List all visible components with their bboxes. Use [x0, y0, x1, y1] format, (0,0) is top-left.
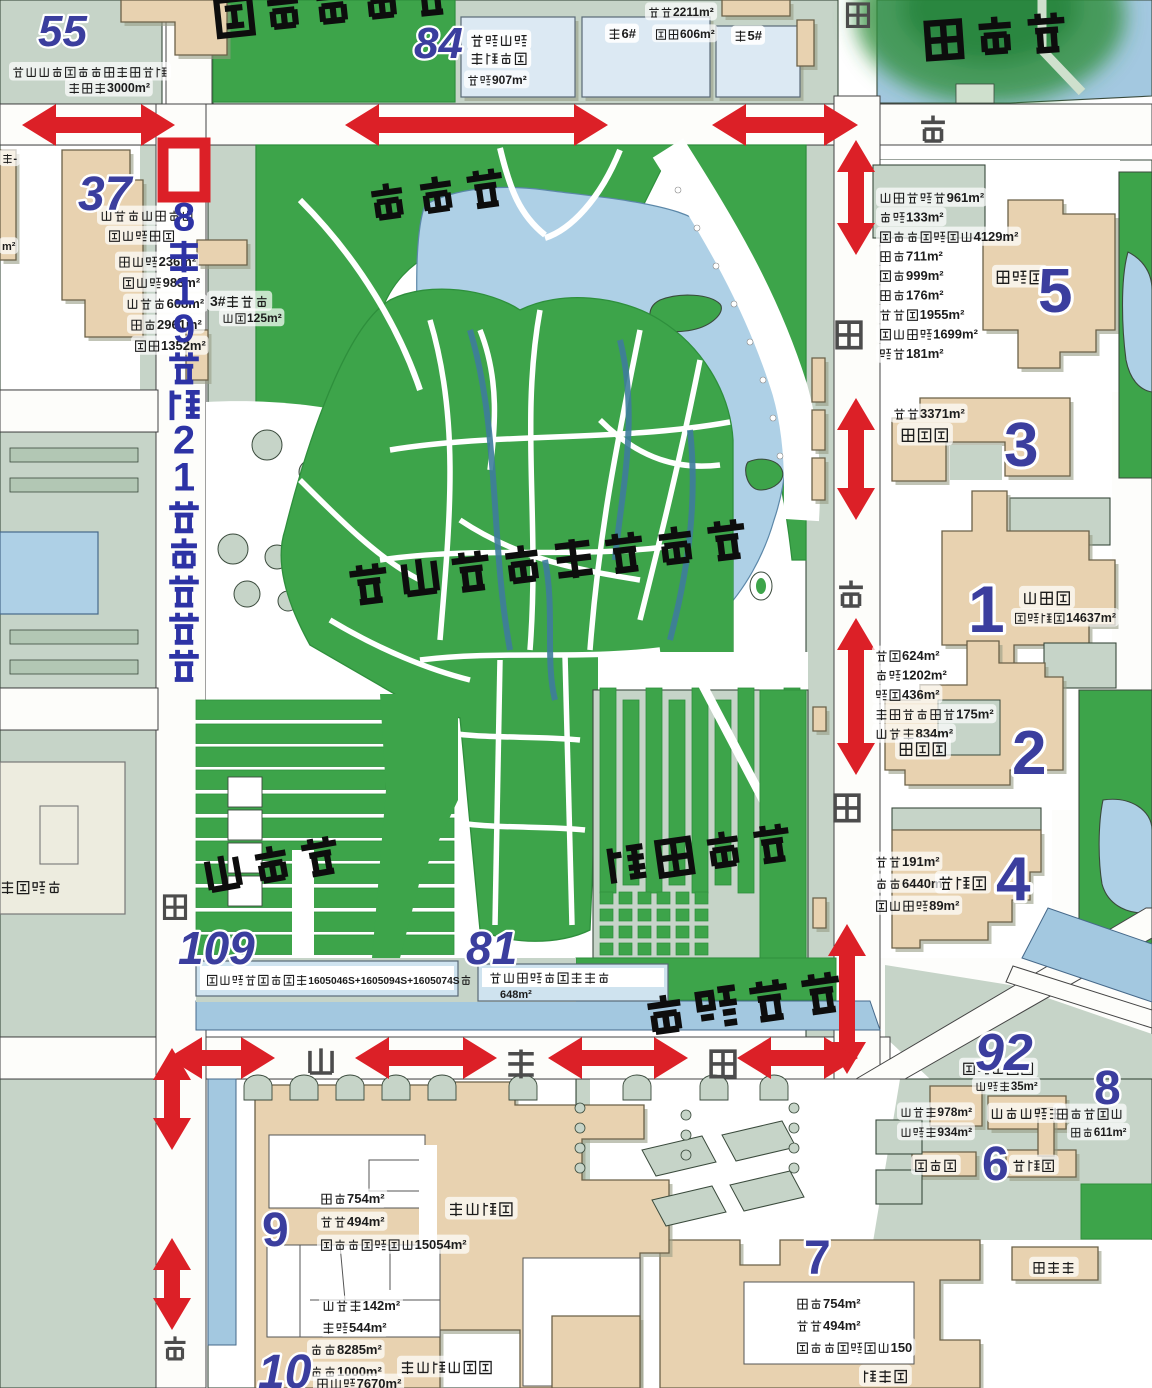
- svg-text:5: 5: [1038, 257, 1072, 326]
- svg-text:175m²: 175m²: [956, 707, 994, 722]
- svg-text:8285m²: 8285m²: [337, 1342, 382, 1357]
- svg-text:55: 55: [38, 7, 87, 56]
- svg-text:711m²: 711m²: [906, 249, 944, 264]
- svg-text:191m²: 191m²: [902, 854, 940, 869]
- svg-text:150: 150: [891, 1340, 913, 1355]
- svg-text:3371m²: 3371m²: [920, 406, 965, 421]
- svg-text:1: 1: [173, 456, 195, 500]
- svg-text:1699m²: 1699m²: [933, 327, 978, 342]
- svg-text:m²: m²: [2, 241, 16, 253]
- svg-text:978m²: 978m²: [937, 1105, 972, 1119]
- svg-text:142m²: 142m²: [363, 1298, 401, 1313]
- svg-text:4129m²: 4129m²: [974, 229, 1019, 244]
- svg-text:1605046S+1605094S+1605074S: 1605046S+1605094S+1605074S: [308, 976, 459, 987]
- svg-text:7: 7: [804, 1232, 831, 1285]
- svg-text:35m²: 35m²: [1011, 1081, 1038, 1093]
- svg-text:14637m²: 14637m²: [1066, 611, 1116, 625]
- svg-text:494m²: 494m²: [347, 1214, 385, 1229]
- svg-text:9: 9: [262, 1204, 289, 1257]
- svg-text:1202m²: 1202m²: [902, 668, 947, 683]
- svg-text:999m²: 999m²: [906, 268, 944, 283]
- svg-text:754m²: 754m²: [823, 1296, 861, 1311]
- svg-text:934m²: 934m²: [937, 1125, 972, 1139]
- svg-text:8: 8: [1094, 1062, 1121, 1115]
- svg-text:961m²: 961m²: [947, 190, 985, 205]
- svg-text:109: 109: [178, 922, 255, 974]
- svg-text:9: 9: [173, 307, 195, 351]
- svg-text:4: 4: [996, 845, 1031, 914]
- svg-text:3000m²: 3000m²: [107, 81, 150, 95]
- svg-text:754m²: 754m²: [347, 1191, 385, 1206]
- svg-text:494m²: 494m²: [823, 1318, 861, 1333]
- svg-text:3: 3: [1004, 411, 1038, 480]
- svg-text:133m²: 133m²: [906, 210, 944, 225]
- svg-text:2: 2: [1012, 719, 1046, 788]
- svg-text:81: 81: [466, 922, 517, 974]
- svg-text:6#: 6#: [622, 26, 637, 41]
- svg-text:89m²: 89m²: [929, 898, 960, 913]
- svg-text:176m²: 176m²: [906, 288, 944, 303]
- svg-text:6: 6: [982, 1138, 1009, 1191]
- svg-text:37: 37: [78, 168, 134, 221]
- svg-text:92: 92: [975, 1024, 1033, 1082]
- svg-text:1: 1: [968, 572, 1005, 646]
- svg-text:1955m²: 1955m²: [920, 307, 965, 322]
- svg-text:611m²: 611m²: [1094, 1127, 1127, 1139]
- svg-text:436m²: 436m²: [902, 687, 940, 702]
- svg-text:606m²: 606m²: [680, 27, 715, 41]
- svg-text:3#: 3#: [210, 293, 226, 309]
- svg-text:-: -: [13, 153, 17, 165]
- svg-text:125m²: 125m²: [247, 311, 282, 325]
- svg-text:10: 10: [258, 1346, 312, 1388]
- svg-text:907m²: 907m²: [492, 73, 527, 87]
- svg-text:84: 84: [414, 19, 463, 68]
- svg-text:15054m²: 15054m²: [415, 1237, 468, 1252]
- svg-text:8: 8: [173, 195, 195, 239]
- svg-text:7670m²: 7670m²: [357, 1376, 402, 1388]
- svg-text:624m²: 624m²: [902, 648, 940, 663]
- svg-text:5#: 5#: [748, 28, 763, 43]
- svg-text:648m²: 648m²: [500, 989, 532, 1001]
- svg-text:2211m²: 2211m²: [673, 5, 714, 19]
- svg-text:181m²: 181m²: [906, 346, 944, 361]
- svg-text:544m²: 544m²: [349, 1320, 387, 1335]
